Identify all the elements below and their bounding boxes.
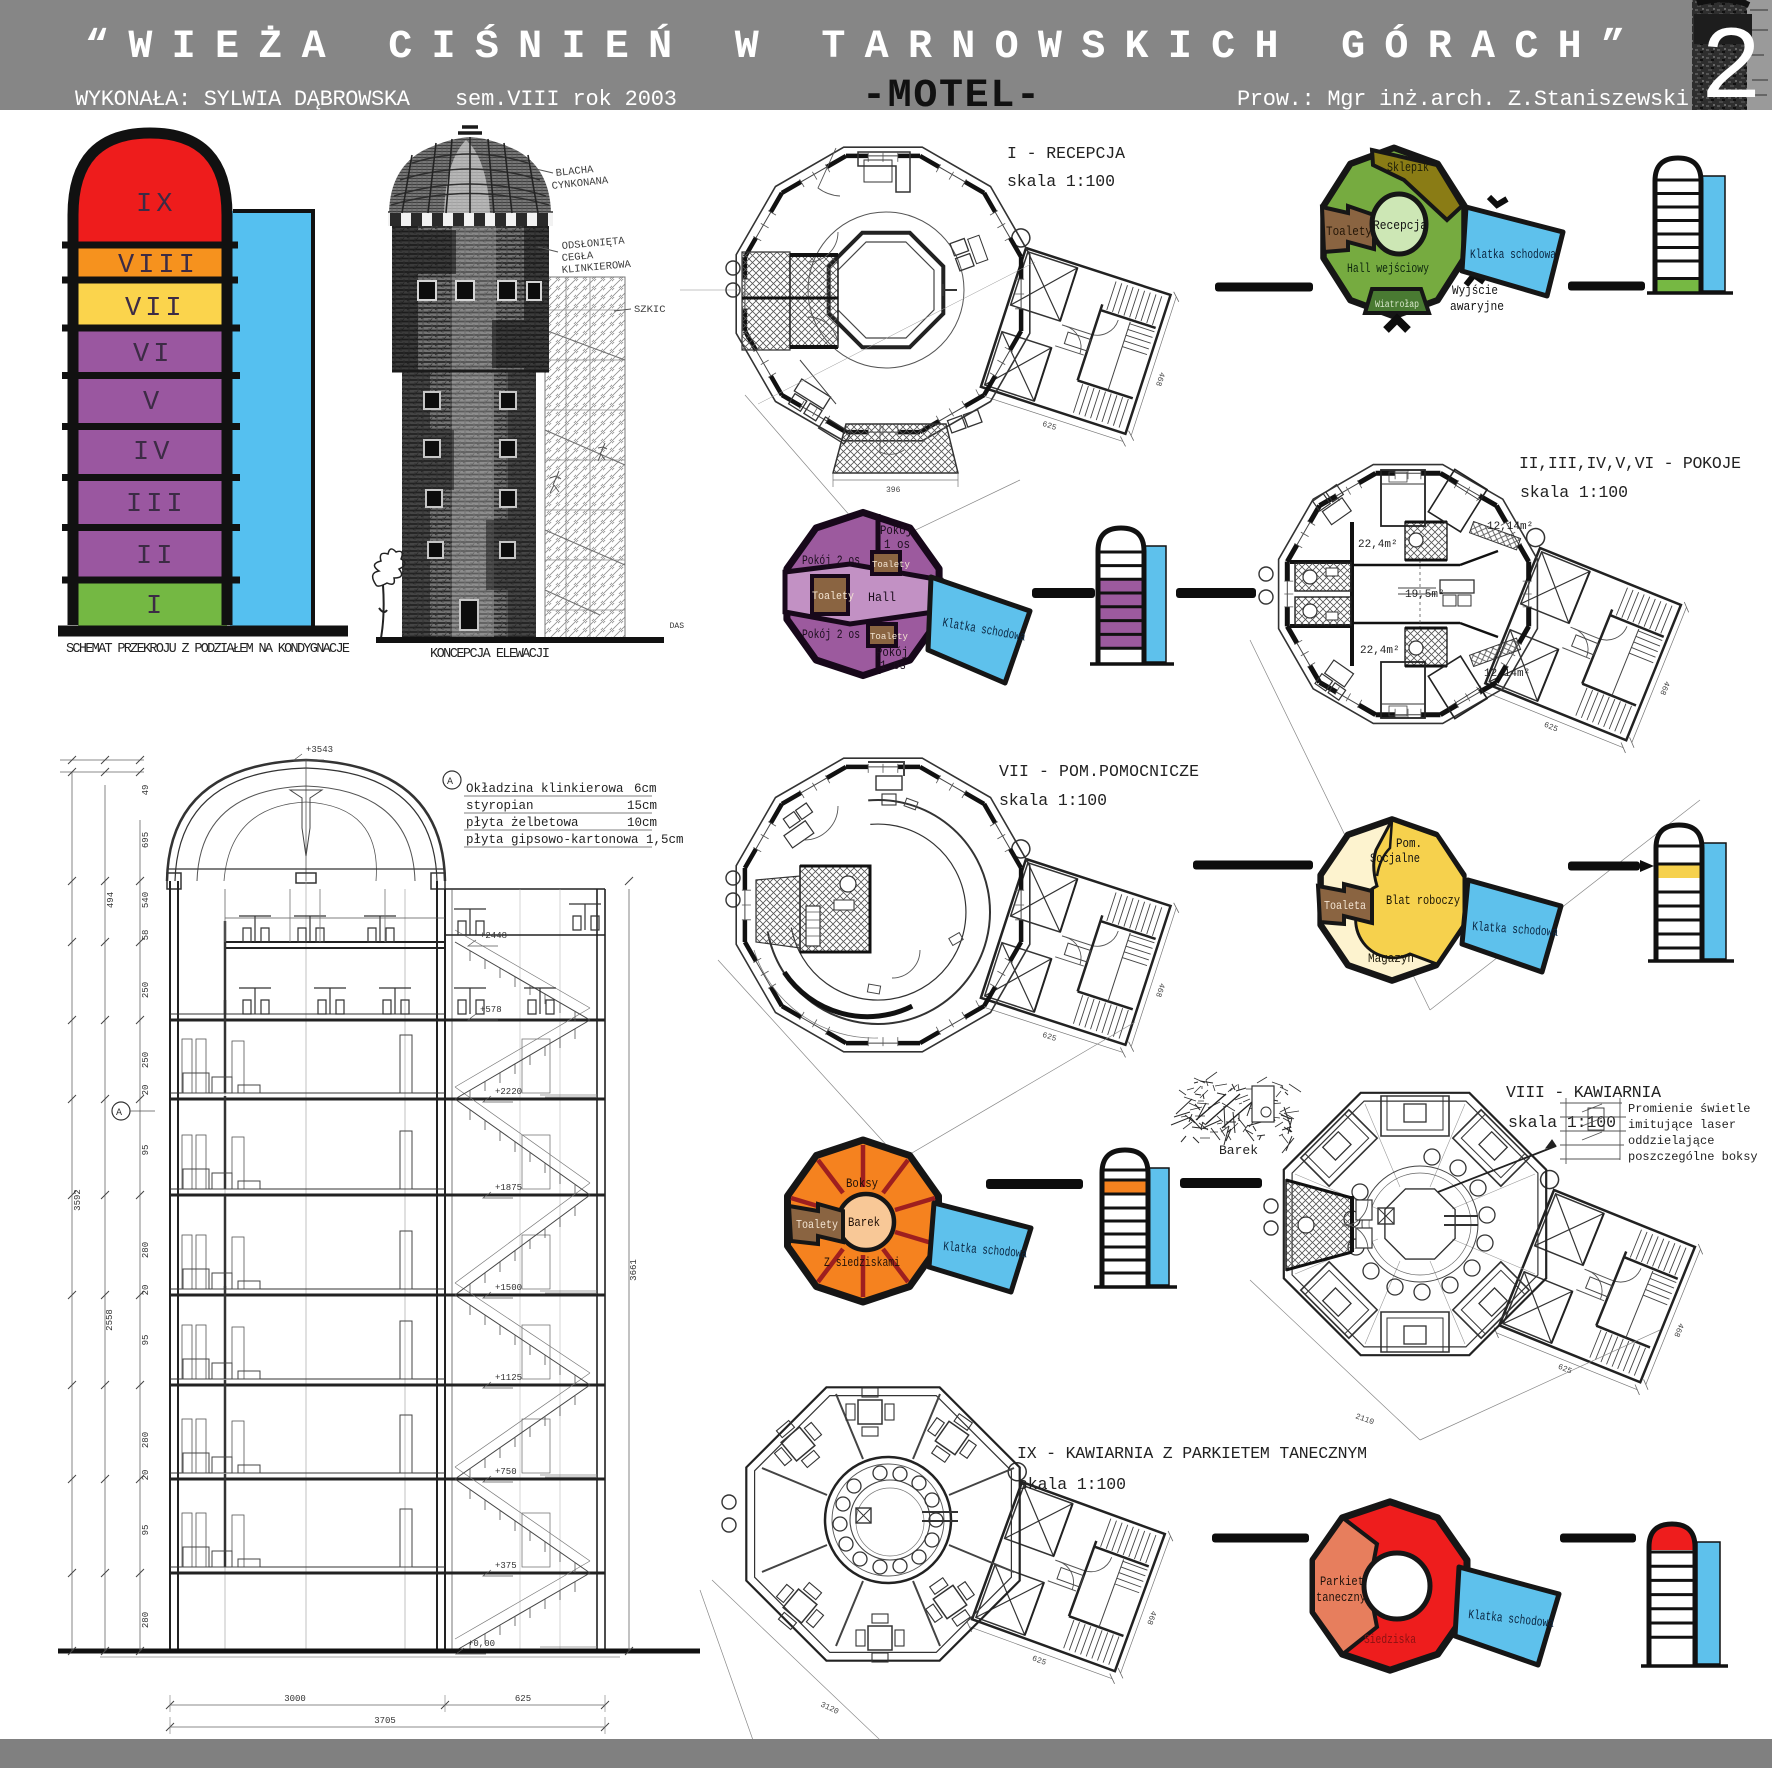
svg-text:+2448: +2448: [480, 931, 507, 941]
svg-text:skala 1:100: skala 1:100: [999, 791, 1107, 810]
svg-text:Pokój: Pokój: [876, 646, 908, 660]
svg-text:DAS: DAS: [670, 622, 685, 631]
svg-text:20: 20: [141, 1470, 151, 1481]
svg-text:3000: 3000: [284, 1694, 306, 1704]
svg-text:KONCEPCJA ELEWACJI: KONCEPCJA ELEWACJI: [430, 647, 550, 662]
svg-text:12,14m²: 12,14m²: [1487, 521, 1533, 533]
svg-text:skala 1:100: skala 1:100: [1520, 483, 1628, 502]
svg-text:95: 95: [141, 1145, 151, 1156]
svg-text:540: 540: [141, 892, 151, 908]
svg-text:49: 49: [141, 785, 151, 796]
svg-text:sem.VIII rok 2003: sem.VIII rok 2003: [455, 87, 677, 112]
svg-text:WYKONAŁA: SYLWIA DĄBROWSKA: WYKONAŁA: SYLWIA DĄBROWSKA: [75, 87, 411, 112]
svg-text:I - RECEPCJA: I - RECEPCJA: [1007, 144, 1125, 163]
svg-text:II,III,IV,V,VI - POKOJE: II,III,IV,V,VI - POKOJE: [1519, 454, 1741, 473]
svg-text:Pokój 2 os: Pokój 2 os: [802, 554, 860, 568]
svg-text:22,4m²: 22,4m²: [1358, 539, 1398, 551]
svg-text:250: 250: [141, 1052, 151, 1068]
svg-text:494: 494: [106, 892, 116, 908]
svg-text:625: 625: [515, 1694, 531, 1704]
svg-text:15cm: 15cm: [627, 799, 657, 813]
svg-text:58: 58: [141, 930, 151, 941]
svg-text:Z siedziskami: Z siedziskami: [824, 1256, 900, 1270]
svg-text:10cm: 10cm: [627, 816, 657, 830]
svg-text:I: I: [146, 592, 166, 622]
svg-text:A: A: [447, 777, 453, 788]
svg-text:+1125: +1125: [495, 1373, 522, 1383]
svg-text:VIII - KAWIARNIA: VIII - KAWIARNIA: [1506, 1083, 1661, 1102]
svg-text:95: 95: [141, 1335, 151, 1346]
svg-text:-MOTEL-: -MOTEL-: [862, 74, 1040, 119]
svg-text:+1500: +1500: [495, 1283, 522, 1293]
svg-text:IV: IV: [133, 438, 173, 468]
svg-text:styropian: styropian: [466, 799, 534, 813]
svg-text:Toalety: Toalety: [812, 591, 854, 603]
svg-text:Boksy: Boksy: [846, 1177, 878, 1191]
svg-text:V: V: [143, 388, 163, 418]
svg-text:Wiatrołap: Wiatrołap: [1375, 299, 1419, 311]
svg-text:2: 2: [1700, 11, 1762, 129]
svg-text:280: 280: [141, 1432, 151, 1448]
svg-text:20: 20: [141, 1285, 151, 1296]
svg-text:280: 280: [141, 1242, 151, 1258]
svg-text:SZKIC: SZKIC: [634, 304, 666, 316]
svg-text:VII: VII: [125, 294, 186, 324]
svg-text:VII - POM.POMOCNICZE: VII - POM.POMOCNICZE: [999, 762, 1199, 781]
svg-text:+0,00: +0,00: [468, 1639, 495, 1649]
svg-text:695: 695: [141, 832, 151, 848]
svg-text:280: 280: [141, 1612, 151, 1628]
svg-text:Barek: Barek: [848, 1216, 880, 1230]
svg-text:+3543: +3543: [306, 745, 333, 755]
svg-text:+1875: +1875: [495, 1183, 522, 1193]
svg-text:+375: +375: [495, 1561, 517, 1571]
svg-text:Toalety: Toalety: [1326, 225, 1372, 239]
svg-text:Pom.: Pom.: [1396, 837, 1422, 851]
svg-text:III: III: [126, 490, 187, 520]
svg-text:skala 1:100: skala 1:100: [1007, 172, 1115, 191]
svg-text:Toalety: Toalety: [796, 1218, 838, 1232]
svg-text:Socjalne: Socjalne: [1370, 852, 1420, 866]
svg-text:VI: VI: [133, 340, 173, 370]
svg-text:Pokój 2 os: Pokój 2 os: [802, 628, 860, 642]
svg-text:IX: IX: [136, 190, 176, 220]
svg-text:22,4m²: 22,4m²: [1360, 645, 1400, 657]
svg-text:95: 95: [141, 1525, 151, 1536]
svg-text:II: II: [136, 542, 176, 572]
svg-text:Hall: Hall: [868, 590, 896, 605]
svg-text:Wyjście: Wyjście: [1452, 283, 1498, 298]
svg-text:3661: 3661: [629, 1259, 639, 1281]
svg-text:SCHEMAT PRZEKROJU Z PODZIAŁEM: SCHEMAT PRZEKROJU Z PODZIAŁEM NA KONDYGN…: [66, 642, 350, 657]
svg-text:płyta gipsowo-kartonowa 1,5cm: płyta gipsowo-kartonowa 1,5cm: [466, 833, 684, 847]
svg-text:IX - KAWIARNIA Z PARKIETEM TAN: IX - KAWIARNIA Z PARKIETEM TANECZNYM: [1017, 1444, 1367, 1463]
svg-text:Siedziska: Siedziska: [1364, 1633, 1416, 1647]
svg-text:Barek: Barek: [1219, 1143, 1258, 1158]
svg-text:Parkiet: Parkiet: [1320, 1575, 1364, 1589]
svg-text:oddzielające: oddzielające: [1628, 1134, 1714, 1148]
svg-text:1 os: 1 os: [884, 538, 910, 552]
svg-text:396: 396: [886, 486, 901, 495]
svg-text:Okładzina klinkierowa: Okładzina klinkierowa: [466, 782, 624, 796]
svg-text:Promienie świetle: Promienie świetle: [1628, 1102, 1750, 1116]
svg-text:19,5m²: 19,5m²: [1405, 589, 1445, 601]
svg-text:Toalety: Toalety: [872, 559, 910, 570]
svg-text:awaryjne: awaryjne: [1450, 299, 1504, 314]
svg-text:skala 1:100: skala 1:100: [1018, 1475, 1126, 1494]
svg-text:Pokój: Pokój: [880, 524, 912, 538]
svg-text:+578: +578: [480, 1005, 502, 1015]
svg-text:taneczny: taneczny: [1316, 1591, 1366, 1605]
svg-text:poszczególne boksy: poszczególne boksy: [1628, 1150, 1758, 1164]
svg-text:Sklepik: Sklepik: [1387, 161, 1429, 175]
svg-text:12,14m²: 12,14m²: [1484, 668, 1530, 680]
svg-text:Toaleta: Toaleta: [1324, 899, 1366, 913]
svg-text:20: 20: [141, 1085, 151, 1096]
svg-text:Blat roboczy: Blat roboczy: [1386, 893, 1460, 908]
svg-text:Magazyn: Magazyn: [1368, 951, 1414, 966]
svg-text:Hall wejściowy: Hall wejściowy: [1347, 261, 1429, 276]
svg-text:Klatka schodowa: Klatka schodowa: [1470, 247, 1556, 262]
svg-text:3705: 3705: [374, 1716, 396, 1726]
svg-text:+750: +750: [495, 1467, 517, 1477]
svg-text:250: 250: [141, 982, 151, 998]
svg-text:Prow.: Mgr inż.arch. Z.Stanisz: Prow.: Mgr inż.arch. Z.Staniszewski: [1237, 87, 1689, 112]
svg-text:imitujące laser: imitujące laser: [1628, 1118, 1736, 1132]
svg-text:2558: 2558: [105, 1309, 115, 1331]
svg-text:3592: 3592: [73, 1189, 83, 1211]
svg-text:6cm: 6cm: [634, 782, 657, 796]
svg-text:płyta żelbetowa: płyta żelbetowa: [466, 816, 579, 830]
svg-text:1 os: 1 os: [880, 659, 906, 673]
svg-text:skala 1:100: skala 1:100: [1508, 1113, 1616, 1132]
svg-text:VIII: VIII: [118, 251, 199, 281]
svg-text:Recepcja: Recepcja: [1373, 219, 1427, 233]
svg-text:+2220: +2220: [495, 1087, 522, 1097]
svg-text:A: A: [116, 1108, 122, 1119]
svg-text:Toalety: Toalety: [870, 631, 908, 642]
